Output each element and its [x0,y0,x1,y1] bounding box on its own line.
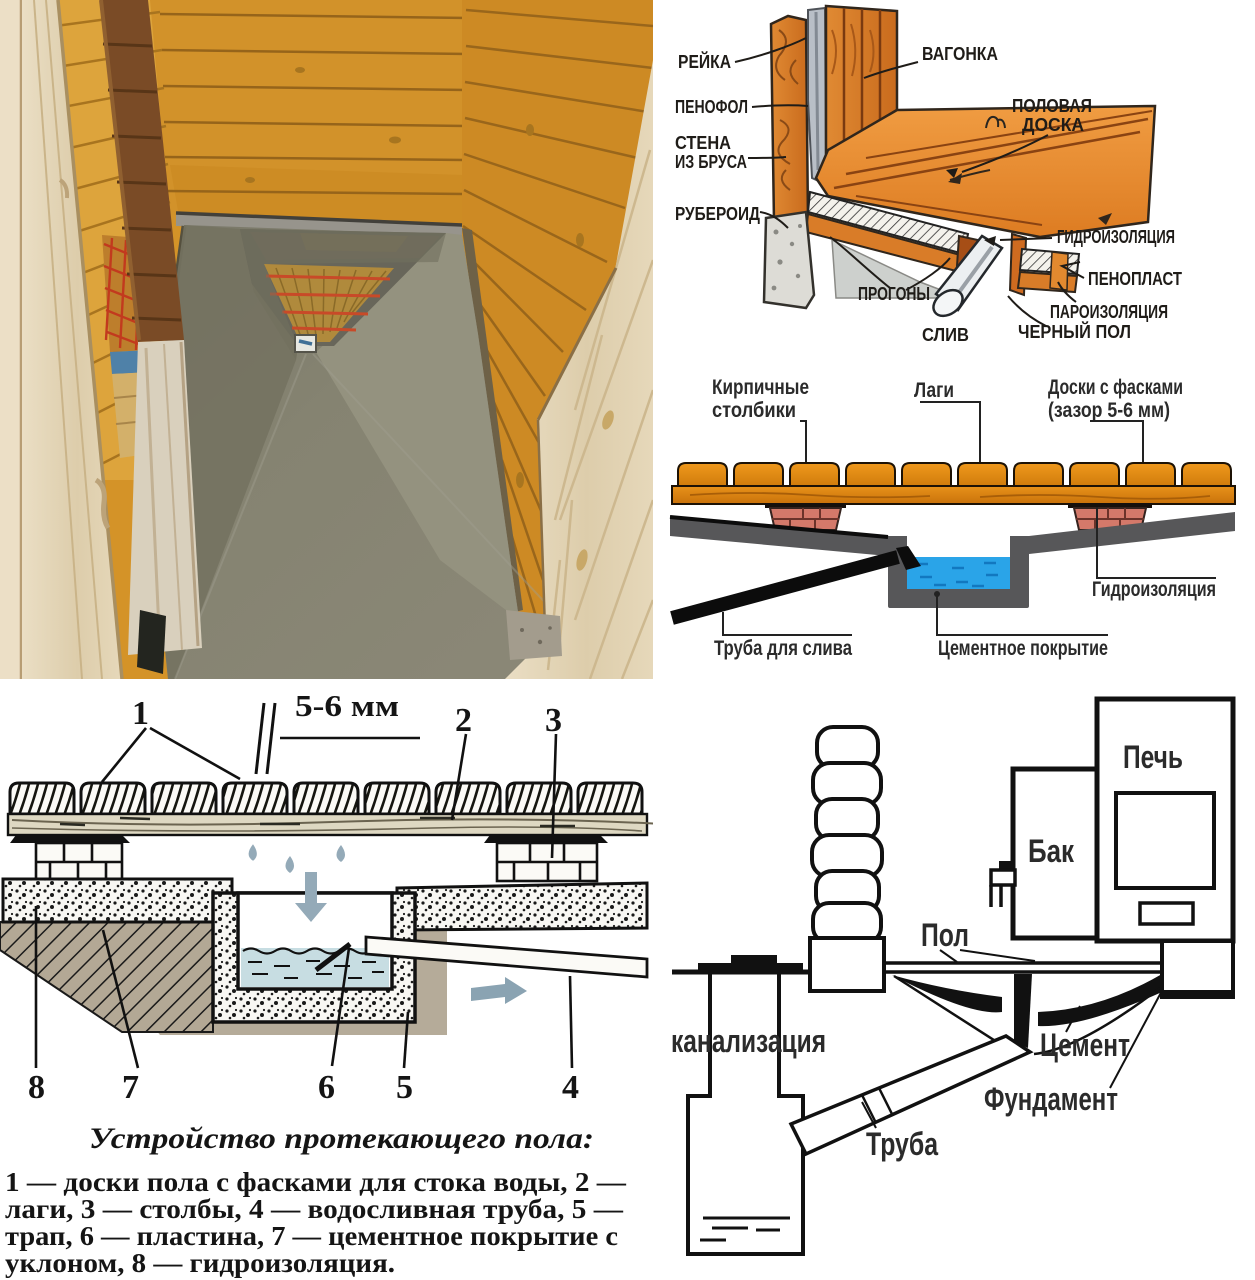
svg-text:ПЕНОФОЛ: ПЕНОФОЛ [675,97,748,117]
svg-text:столбики: столбики [712,399,796,422]
svg-text:Фундамент: Фундамент [984,1081,1118,1117]
svg-text:2: 2 [455,702,472,739]
svg-text:РЕЙКА: РЕЙКА [678,51,731,72]
svg-text:Лаги: Лаги [914,379,954,402]
svg-text:1: 1 [132,695,149,732]
svg-text:ПРОГОНЫ: ПРОГОНЫ [858,284,930,304]
svg-text:ИЗ БРУСА: ИЗ БРУСА [675,152,747,172]
svg-text:ПАРОИЗОЛЯЦИЯ: ПАРОИЗОЛЯЦИЯ [1050,302,1168,322]
svg-text:ЧЕРНЫЙ ПОЛ: ЧЕРНЫЙ ПОЛ [1018,321,1131,342]
svg-text:Доски с фасками: Доски с фасками [1048,376,1183,399]
svg-text:Печь: Печь [1123,739,1183,775]
svg-text:канализация: канализация [671,1023,826,1059]
svg-text:7: 7 [122,1069,139,1106]
svg-text:Труба: Труба [866,1126,938,1162]
svg-text:1 — доски пола с фасками для с: 1 — доски пола с фасками для стока воды,… [5,1167,627,1197]
svg-text:ВАГОНКА: ВАГОНКА [922,44,998,64]
svg-text:Бак: Бак [1028,833,1075,869]
svg-text:трап, 6 — пластина, 7 — цемент: трап, 6 — пластина, 7 — цементное покрыт… [5,1221,618,1251]
svg-text:Кирпичные: Кирпичные [712,376,809,399]
svg-text:6: 6 [318,1069,335,1106]
svg-text:уклоном, 8 — гидроизоляция.: уклоном, 8 — гидроизоляция. [5,1248,395,1278]
svg-text:лаги, 3 — столбы, 4 — водослив: лаги, 3 — столбы, 4 — водосливная труба,… [5,1194,624,1224]
svg-text:ДОСКА: ДОСКА [1022,115,1084,135]
svg-text:СТЕНА: СТЕНА [675,133,731,153]
svg-text:Гидроизоляция: Гидроизоляция [1092,578,1216,601]
svg-text:СЛИВ: СЛИВ [922,325,969,345]
svg-text:3: 3 [545,702,562,739]
svg-text:ГИДРОИЗОЛЯЦИЯ: ГИДРОИЗОЛЯЦИЯ [1057,227,1175,247]
svg-text:4: 4 [562,1069,579,1106]
svg-text:Пол: Пол [921,917,969,953]
svg-text:5-6 мм: 5-6 мм [295,688,399,723]
svg-text:Труба для слива: Труба для слива [714,637,852,660]
svg-text:8: 8 [28,1069,45,1106]
svg-text:Устройство протекающего пола:: Устройство протекающего пола: [89,1122,594,1155]
svg-text:ПОЛОВАЯ: ПОЛОВАЯ [1012,96,1092,116]
svg-text:ПЕНОПЛАСТ: ПЕНОПЛАСТ [1088,269,1182,289]
svg-text:Цементное покрытие: Цементное покрытие [938,637,1108,660]
svg-text:(зазор 5-6 мм): (зазор 5-6 мм) [1048,399,1170,422]
svg-text:Цемент: Цемент [1040,1027,1130,1063]
svg-text:РУБЕРОИД: РУБЕРОИД [675,204,760,224]
svg-text:5: 5 [396,1069,413,1106]
